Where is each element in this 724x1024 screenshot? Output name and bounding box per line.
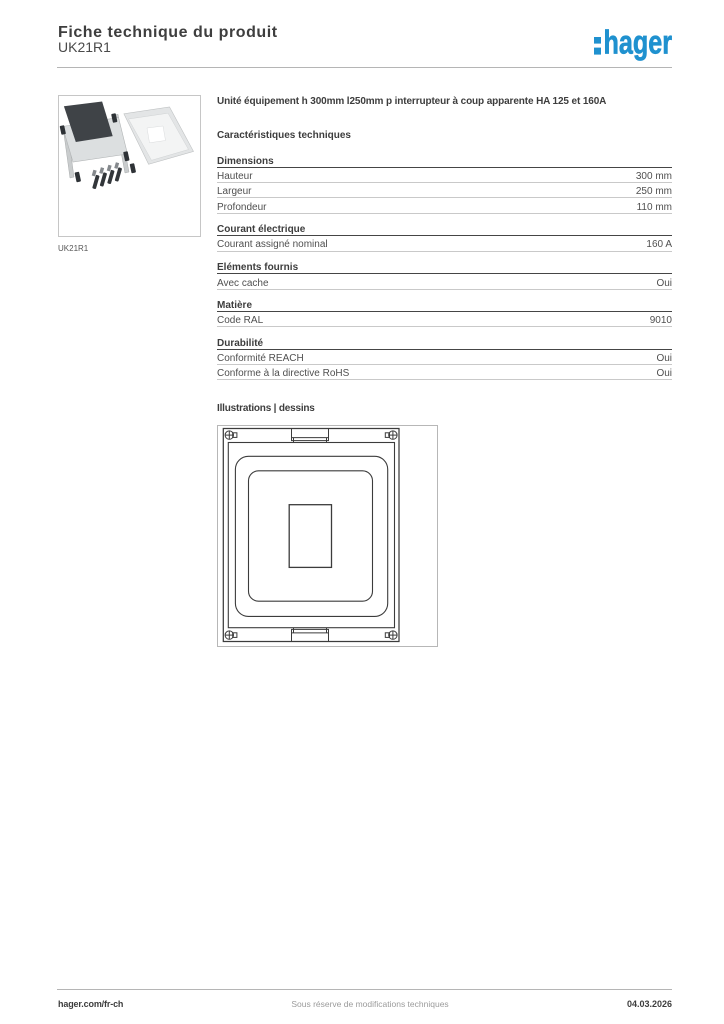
svg-text:hager: hager <box>604 23 673 60</box>
